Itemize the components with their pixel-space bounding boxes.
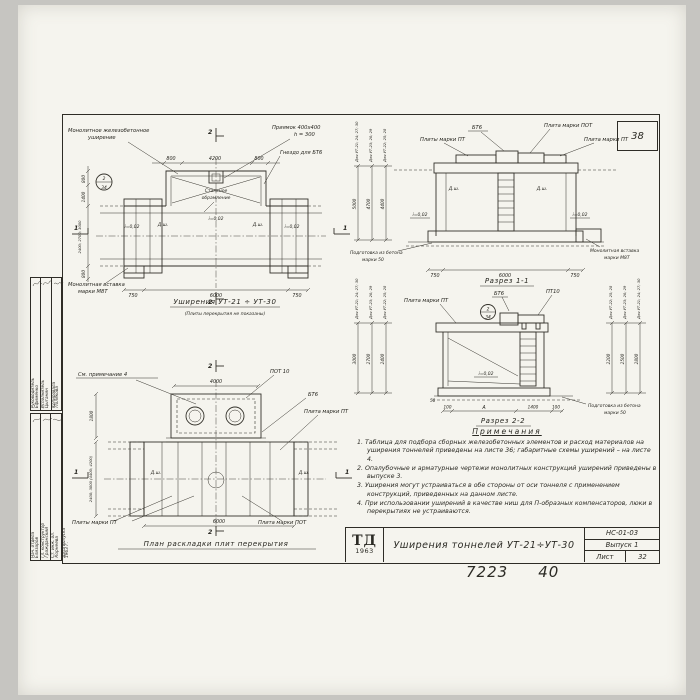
handwritten-doc-number: 722340 bbox=[466, 563, 589, 581]
callout-sheet: 34 bbox=[101, 185, 107, 191]
label-monolithic-insert: Монолитная вставка bbox=[590, 248, 639, 254]
dim-800: 800 bbox=[254, 156, 263, 162]
callout-number: 2 bbox=[487, 307, 490, 313]
dim-2400: 2400 bbox=[380, 353, 385, 364]
title-block: ТД 1963 Уширения тоннелей УТ-21÷УТ-30 НС… bbox=[345, 527, 659, 562]
plan-widening-drawing: Монолитное железобетонное уширение Приям… bbox=[66, 116, 356, 316]
label-bt6: БТ6 bbox=[308, 392, 319, 398]
label-concrete-prep: Подготовка из бетона bbox=[350, 250, 403, 256]
section-mark-1: 1 bbox=[74, 225, 78, 232]
dim-2800: 2800 bbox=[634, 353, 639, 364]
stamp-row: Копировала Полякова bbox=[52, 278, 61, 410]
section-1-1-drawing: Для УТ-21; 24; 27; 30 Для УТ-23; 26; 29 … bbox=[348, 118, 648, 290]
section-mark-1: 1 bbox=[345, 469, 349, 476]
for-tunnels-label: Для УТ-21; 24; 27; 30 bbox=[355, 121, 359, 163]
slope-note: i=0,02 bbox=[124, 224, 139, 230]
dim-4000: 4000 bbox=[210, 379, 222, 385]
issue-number: Выпуск 1 bbox=[585, 540, 659, 552]
note-item-1: 1. Таблица для подбора сборных железобет… bbox=[357, 439, 657, 464]
dim-5000: 5000 bbox=[352, 198, 357, 209]
section1-linework bbox=[354, 129, 616, 286]
label-pot-slab: Плита марки ПОТ bbox=[258, 520, 307, 526]
label-steel-frame: Стальное bbox=[205, 188, 228, 194]
joint-note: Д.ш. bbox=[298, 470, 310, 476]
sheet-row: Лист 32 bbox=[585, 551, 659, 562]
slope-note: i=0,02 bbox=[284, 224, 299, 230]
label-bt6: БТ6 bbox=[494, 291, 505, 297]
dim-left-1400: 1400 bbox=[81, 191, 86, 202]
for-tunnels-label: Для УТ-21; 24; 27; 30 bbox=[355, 278, 359, 320]
label-socket-bt6: Гнездо для БТ6 bbox=[280, 150, 323, 156]
label-monolithic-widening-2: уширение bbox=[87, 135, 116, 141]
section-2-2-drawing: Для УТ-21; 24; 27; 30 Для УТ-23; 26; 29 … bbox=[348, 283, 653, 429]
label-monolithic-insert: Монолитная вставка bbox=[68, 282, 125, 288]
dim-1400: 1400 bbox=[528, 405, 539, 410]
doc-number-left: 7223 bbox=[466, 563, 508, 581]
dim-750: 750 bbox=[128, 293, 137, 299]
slope-note: i=0,02 bbox=[412, 212, 427, 218]
label-pt-slab: Плита марки ПТ bbox=[304, 409, 349, 415]
label-pit: Приямок 400х400 bbox=[272, 125, 321, 131]
dim-4700: 4700 bbox=[366, 198, 371, 209]
slab-plan-title: План раскладки плит перекрытия bbox=[144, 540, 289, 548]
callout-sheet: 34 bbox=[485, 315, 491, 321]
dim-750: 750 bbox=[292, 293, 301, 299]
label-concrete-prep: Подготовка из бетона bbox=[588, 403, 641, 409]
plan-subtitle: (Плиты перекрытия не показаны) bbox=[185, 311, 266, 317]
slab-layout-plan-drawing: См. примечание 4 ПОТ 10 БТ6 Плита марки … bbox=[66, 356, 361, 554]
dim-50: 50 bbox=[430, 398, 436, 403]
scanned-drawing-page: 38 Руководитель Ефименко Исполнитель Цыг… bbox=[0, 0, 700, 700]
label-concrete-prep-2: марки 50 bbox=[362, 257, 384, 263]
sheet-number: 32 bbox=[626, 551, 659, 562]
label-pt10: ПТ10 bbox=[546, 289, 560, 295]
dim-6000: 6000 bbox=[213, 519, 225, 525]
joint-note: Д.ш. bbox=[252, 222, 264, 228]
label-pot10: ПОТ 10 bbox=[270, 369, 290, 375]
title-block-right: НС-01-03 Выпуск 1 Лист 32 bbox=[585, 528, 659, 562]
note-item-4: 4. При использовании уширений в качестве… bbox=[357, 500, 657, 517]
section-2-2-title: Разрез 2-2 bbox=[481, 417, 525, 425]
dim-4200: 4200 bbox=[209, 156, 221, 162]
label-see-note: См. примечание 4 bbox=[78, 372, 127, 378]
label-pot-slab: Плита марки ПОТ bbox=[544, 123, 593, 129]
dim-2700: 2700 bbox=[366, 353, 371, 364]
logo-year: 1963 bbox=[355, 547, 374, 555]
dim-2200: 2200 bbox=[606, 353, 611, 364]
label-monolithic-widening: Монолитное железобетонное bbox=[68, 128, 149, 134]
slope-note: i=0,02 bbox=[208, 216, 223, 222]
label-concrete-prep-2: марки 50 bbox=[604, 410, 626, 416]
dim-4400: 4400 bbox=[380, 198, 385, 209]
dim-100: 100 bbox=[444, 405, 452, 410]
label-pt-slab: Плита марки ПТ bbox=[404, 298, 449, 304]
sheet-label: Лист bbox=[585, 551, 626, 562]
dim-left-800: 800 bbox=[81, 175, 86, 183]
callout-number: 2 bbox=[103, 176, 106, 182]
dim-800: 800 bbox=[166, 156, 175, 162]
dim-left-range: 2400; 2700; 3000 bbox=[78, 220, 82, 254]
stamp-column-signatures: Руководитель Ефименко Исполнитель Цыгани… bbox=[30, 277, 62, 411]
joint-note: Д.ш. bbox=[448, 186, 460, 192]
joint-note: Д.ш. bbox=[157, 222, 169, 228]
dim-100: 100 bbox=[552, 405, 560, 410]
signature-mark bbox=[53, 279, 64, 288]
drawing-title: Уширения тоннелей УТ-21÷УТ-30 bbox=[384, 528, 585, 562]
section-mark-1: 1 bbox=[343, 225, 347, 232]
doc-number-right: 40 bbox=[538, 563, 559, 581]
plan-title: Уширения УТ-21 ÷ УТ-30 bbox=[174, 298, 277, 306]
label-pt-slab: Плита марки ПТ bbox=[584, 137, 629, 143]
for-tunnels-label: Для УТ-23; 26; 29 bbox=[623, 285, 627, 320]
dim-750: 750 bbox=[430, 273, 439, 279]
logo-letters: ТД bbox=[352, 535, 377, 548]
organization-logo: ТД 1963 bbox=[346, 528, 384, 562]
dim-left-800: 800 bbox=[81, 270, 86, 278]
label-pt-slabs: Плиты марки ПТ bbox=[420, 137, 466, 143]
for-tunnels-label: Для УТ-22; 25; 28 bbox=[383, 128, 387, 163]
slope-note: i=0,02 bbox=[478, 371, 493, 377]
label-pt-slabs: Плиты марки ПТ bbox=[72, 520, 118, 526]
dim-1800: 1800 bbox=[89, 410, 94, 421]
section-mark-2: 2 bbox=[208, 363, 212, 370]
for-tunnels-label: Для УТ-23; 26; 29 bbox=[369, 285, 373, 320]
document-code: НС-01-03 bbox=[585, 528, 659, 540]
dim-left-range: 2400; 3000 (4400; 4200) bbox=[89, 455, 93, 502]
joint-note: Д.ш. bbox=[150, 470, 162, 476]
note-item-2: 2. Опалубочные и арматурные чертежи моно… bbox=[357, 465, 657, 482]
section-mark-2: 2 bbox=[208, 529, 212, 536]
for-tunnels-label: Для УТ-22; 25; 28 bbox=[383, 285, 387, 320]
label-steel-frame-2: обрамление bbox=[202, 195, 231, 201]
joint-note: Д.ш. bbox=[536, 186, 548, 192]
section-mark-1: 1 bbox=[74, 469, 78, 476]
label-bt6: БТ6 bbox=[472, 125, 483, 131]
note-item-3: 3. Уширения могут устраиваться в обе сто… bbox=[357, 482, 657, 499]
notes-block: Примечания 1. Таблица для подбора сборны… bbox=[357, 427, 657, 517]
section-mark-2: 2 bbox=[208, 129, 212, 136]
stamp-name: Полякова bbox=[56, 386, 61, 408]
dim-750: 750 bbox=[570, 273, 579, 279]
stamp-column-approvals: Нач. отдела Елизаров Гл. конструктор Гра… bbox=[30, 413, 62, 561]
label-insert-grade: марки М8Т bbox=[604, 255, 631, 261]
stamp-name: Корнеева bbox=[56, 536, 61, 558]
label-pit-height: h = 300 bbox=[294, 132, 316, 138]
for-tunnels-label: Для УТ-21; 24; 27; 30 bbox=[637, 278, 641, 320]
for-tunnels-label: Для УТ-22; 25; 28 bbox=[609, 285, 613, 320]
notes-heading: Примечания bbox=[357, 427, 657, 436]
for-tunnels-label: Для УТ-23; 26; 29 bbox=[369, 128, 373, 163]
dim-2500: 2500 bbox=[620, 353, 625, 364]
stamp-name: Цыганин bbox=[46, 388, 51, 408]
slope-note: i=0,02 bbox=[572, 212, 587, 218]
label-insert-grade: марки М8Т bbox=[78, 289, 108, 295]
dim-A: А bbox=[481, 405, 485, 411]
